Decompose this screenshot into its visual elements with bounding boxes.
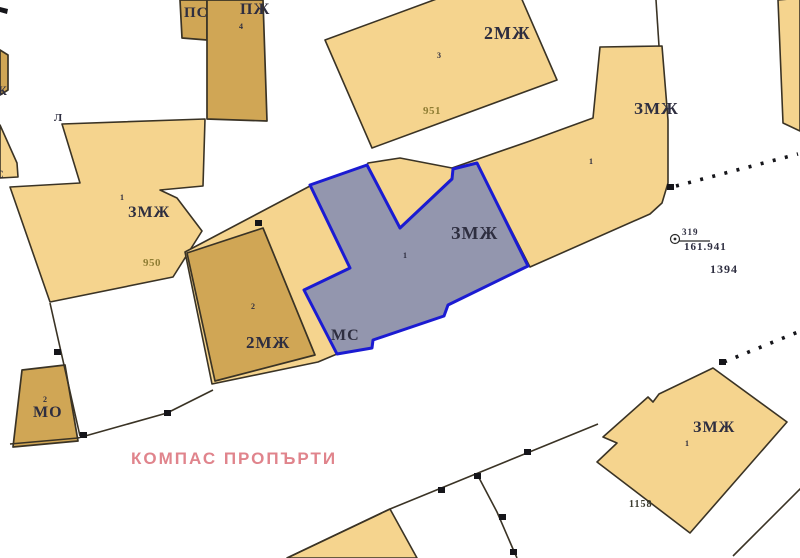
label-id-1158: 1158 [629, 500, 652, 510]
label-num-2: 2 [251, 303, 256, 311]
label-num-mo: 2 [43, 396, 48, 404]
label-zone-pj: ПЖ [240, 2, 270, 18]
dotted-boundary-1 [676, 154, 798, 186]
road-line-left-top [656, 0, 659, 46]
label-zone-zmj-bottomright: ЗМЖ [693, 420, 735, 436]
dotted-boundary-2 [724, 332, 798, 362]
corner-mark [0, 7, 8, 14]
label-zone-zmj-left: ЗМЖ [128, 205, 170, 221]
label-zone-ps: ПС [184, 6, 209, 21]
label-survey-value: 161.941 [684, 242, 727, 253]
parcel-950[interactable] [10, 119, 205, 302]
road-line-bottom-right [733, 488, 800, 556]
label-id-950: 950 [143, 258, 161, 269]
label-ms: МС [331, 328, 360, 344]
label-zone-2mj-top: 2МЖ [484, 24, 531, 42]
label-survey-id: 319 [682, 228, 699, 237]
label-edge-l: Л [54, 113, 63, 124]
label-num-3: 3 [437, 52, 442, 60]
parcel-building-pj[interactable] [207, 0, 267, 121]
label-num-1-selected: 1 [403, 252, 408, 260]
label-edge-zh: Ж [0, 84, 8, 97]
watermark: КОМПАС ПРОПЪРТИ [131, 450, 337, 467]
label-num-1-bottomright: 1 [685, 440, 690, 448]
label-zone-zmj-topright: ЗМЖ [634, 100, 679, 117]
parcel-top-right-corner[interactable] [778, 0, 800, 131]
road-line-branch [477, 474, 517, 558]
label-num-1-right: 1 [589, 158, 594, 166]
label-mo: МО [33, 405, 63, 421]
label-zone-zmj-selected: ЗМЖ [451, 224, 498, 242]
label-num-pj: 4 [239, 23, 244, 31]
parcel-zmj-bottom-right[interactable] [597, 368, 787, 533]
label-zone-2mj-left: 2МЖ [246, 334, 290, 351]
label-block-1394: 1394 [710, 263, 738, 275]
label-num-1-left: 1 [120, 194, 125, 202]
label-edge-s: С [0, 168, 5, 180]
label-id-951: 951 [423, 106, 441, 117]
cadastral-map: ПС ПЖ 4 2МЖ 3 951 ЗМЖ 1 319 161.941 1394… [0, 0, 800, 558]
map-canvas [0, 0, 800, 558]
parcel-bottom-center[interactable] [287, 509, 417, 558]
